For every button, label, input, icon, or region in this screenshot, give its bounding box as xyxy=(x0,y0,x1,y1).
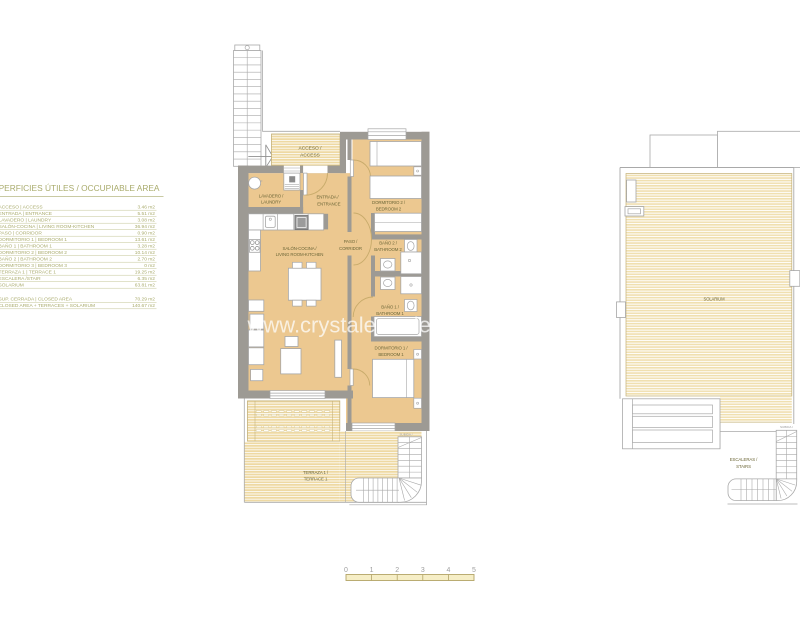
svg-text:BATHROOM 2: BATHROOM 2 xyxy=(374,247,402,252)
svg-text:BEDROOM 1: BEDROOM 1 xyxy=(378,352,404,357)
svg-text:www.crystale realestat: www.crystale realestat xyxy=(247,312,467,337)
svg-text:ACCESO | ACCESS: ACCESO | ACCESS xyxy=(0,205,43,211)
svg-text:ACCESS: ACCESS xyxy=(300,153,320,159)
svg-text:PASO | CORRIDOR: PASO | CORRIDOR xyxy=(0,231,42,237)
svg-text:SUP. CERRADA | CLOSED AREA: SUP. CERRADA | CLOSED AREA xyxy=(0,297,73,303)
svg-text:BAÑO 1 /: BAÑO 1 / xyxy=(381,305,399,310)
svg-text:6.35 m2: 6.35 m2 xyxy=(137,276,155,282)
svg-text:2.70 m2: 2.70 m2 xyxy=(137,257,155,263)
svg-text:PASO /: PASO / xyxy=(344,239,358,244)
svg-text:1: 1 xyxy=(370,567,374,574)
svg-text:3.28 m2: 3.28 m2 xyxy=(137,244,155,250)
svg-text:ENTRADA /: ENTRADA / xyxy=(316,195,339,200)
svg-text:DORMITORIO 1 | BEDROOM 1: DORMITORIO 1 | BEDROOM 1 xyxy=(0,237,67,243)
svg-text:TERRAZA 1 /: TERRAZA 1 / xyxy=(303,470,329,475)
svg-text:LIVING ROOM-KITCHEN: LIVING ROOM-KITCHEN xyxy=(276,252,324,257)
svg-text:5.51 m2: 5.51 m2 xyxy=(137,211,155,217)
svg-text:63.81 m2: 63.81 m2 xyxy=(135,283,156,289)
svg-text:BEDROOM 2: BEDROOM 2 xyxy=(376,206,402,211)
svg-text:LAUNDRY: LAUNDRY xyxy=(261,199,281,204)
svg-text:LAVADERO /: LAVADERO / xyxy=(259,194,284,199)
svg-text:BAÑO 2 | BATHROOM 2: BAÑO 2 | BATHROOM 2 xyxy=(0,256,52,263)
svg-text:SALÓN-COCINA /: SALÓN-COCINA / xyxy=(283,246,318,251)
svg-text:0 m2: 0 m2 xyxy=(144,263,155,269)
svg-text:ENTRANCE: ENTRANCE xyxy=(317,201,340,206)
svg-text:TERRAZA 1 | TERRACE 1: TERRAZA 1 | TERRACE 1 xyxy=(0,270,56,276)
svg-text:CLOSED AREA + TERRACES + SOLAR: CLOSED AREA + TERRACES + SOLARIUM xyxy=(0,303,95,309)
svg-text:ACCESO /: ACCESO / xyxy=(299,146,323,152)
svg-text:BAÑO 2 /: BAÑO 2 / xyxy=(379,240,397,245)
svg-text:DORMITORIO 2 /: DORMITORIO 2 / xyxy=(372,200,406,205)
svg-text:DORMITORIO 2 | BEDROOM 2: DORMITORIO 2 | BEDROOM 2 xyxy=(0,250,67,256)
svg-text:70.29 m2: 70.29 m2 xyxy=(135,297,156,303)
svg-text:LAVADERO | LAUNDRY: LAVADERO | LAUNDRY xyxy=(0,218,52,224)
svg-text:SUPERFICIES ÚTILES / OCCUPIABL: SUPERFICIES ÚTILES / OCCUPIABLE AREA xyxy=(0,183,160,193)
svg-text:0: 0 xyxy=(344,567,348,574)
svg-text:ESCALERAS /: ESCALERAS / xyxy=(730,457,758,462)
svg-text:3.08 m2: 3.08 m2 xyxy=(137,218,155,224)
svg-text:10.14 m2: 10.14 m2 xyxy=(135,250,156,256)
svg-text:13.61 m2: 13.61 m2 xyxy=(135,237,156,243)
svg-text:BAÑO 1 | BATHROOM 1: BAÑO 1 | BATHROOM 1 xyxy=(0,243,52,250)
svg-text:SUBIDA /: SUBIDA / xyxy=(399,432,412,436)
svg-text:DORMITORIO 3 | BEDROOM 3: DORMITORIO 3 | BEDROOM 3 xyxy=(0,263,67,269)
svg-text:36.94 m2: 36.94 m2 xyxy=(135,224,156,230)
svg-text:DORMITORIO 1 /: DORMITORIO 1 / xyxy=(375,345,409,350)
svg-text:140.67 m2: 140.67 m2 xyxy=(132,303,155,309)
svg-text:SOLARIUM: SOLARIUM xyxy=(704,296,726,301)
svg-text:SUBIDA /: SUBIDA / xyxy=(780,425,793,429)
svg-text:19.25 m2: 19.25 m2 xyxy=(135,270,156,276)
svg-text:STAIRS: STAIRS xyxy=(736,464,751,469)
svg-text:0.90 m2: 0.90 m2 xyxy=(137,231,155,237)
svg-text:SOLARIUM: SOLARIUM xyxy=(0,283,24,289)
svg-text:4: 4 xyxy=(446,567,450,574)
svg-text:2: 2 xyxy=(395,567,399,574)
svg-text:ESCALERA /STAIR: ESCALERA /STAIR xyxy=(0,276,41,282)
svg-text:5: 5 xyxy=(472,567,476,574)
svg-text:TERRACE 1: TERRACE 1 xyxy=(304,477,328,482)
svg-text:SALÓN-COCINA | LIVING ROOM-K: SALÓN-COCINA | LIVING ROOM-KITCHEN xyxy=(0,223,95,230)
svg-text:CORRIDOR: CORRIDOR xyxy=(339,246,362,251)
svg-text:3: 3 xyxy=(421,567,425,574)
svg-text:3.46 m2: 3.46 m2 xyxy=(137,205,155,211)
svg-text:ENTRADA | ENTRANCE: ENTRADA | ENTRANCE xyxy=(0,211,53,217)
